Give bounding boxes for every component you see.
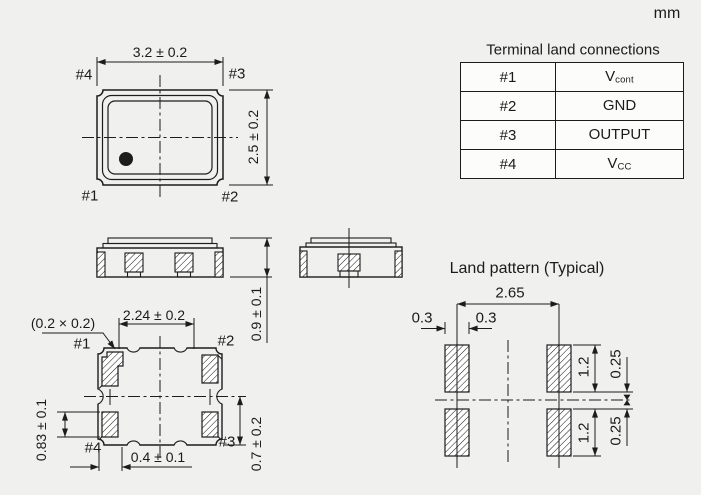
terminal-left bbox=[300, 251, 307, 277]
land-pattern-gap-top-dim: 0.25 bbox=[609, 349, 624, 378]
terminal-number-cell: #3 bbox=[461, 121, 556, 150]
terminal-left bbox=[97, 252, 105, 277]
terminal-center-a bbox=[125, 253, 143, 272]
end-side-view-drawing bbox=[300, 228, 402, 288]
land-pattern-offset-right-dim: 0.3 bbox=[476, 311, 497, 326]
terminal-land-connections-table: #1 Vcont #2 GND #3 OUTPUT #4 VCC bbox=[460, 62, 684, 179]
terminal-connection-cell: Vcont bbox=[556, 63, 684, 92]
terminal-number-cell: #2 bbox=[461, 92, 556, 121]
bottom-view-center-offset-dim: 0.7 ± 0.2 bbox=[249, 417, 263, 471]
bottom-view-index-notch-dim: (0.2 × 0.2) bbox=[31, 316, 95, 330]
terminal-foot-a bbox=[128, 272, 141, 277]
top-view-pin2-label: #2 bbox=[222, 190, 239, 205]
pad-width-dim-extensions bbox=[99, 447, 122, 471]
terminal-number-cell: #4 bbox=[461, 150, 556, 179]
bottom-view-pad-pitch-dim: 2.24 ± 0.2 bbox=[123, 308, 185, 322]
top-view-pin3-label: #3 bbox=[229, 67, 246, 82]
top-view-height-dim: 2.5 ± 0.2 bbox=[246, 110, 260, 164]
pad-3 bbox=[202, 412, 218, 437]
land-pattern-offset-left-dim: 0.3 bbox=[412, 311, 433, 326]
centerlines bbox=[82, 75, 238, 200]
pin1-index-dot bbox=[119, 152, 133, 166]
terminal-foot-b bbox=[178, 272, 191, 277]
land-pattern-pad-length-top-dim: 1.2 bbox=[577, 357, 592, 378]
bottom-view-pin1-label: #1 bbox=[74, 337, 91, 352]
front-side-view-drawing bbox=[97, 238, 272, 343]
terminal-table-title: Terminal land connections bbox=[486, 43, 659, 58]
table-row: #4 VCC bbox=[461, 150, 684, 179]
top-view-pin4-label: #4 bbox=[76, 68, 93, 83]
gap-bottom-dim-arrow bbox=[624, 400, 631, 405]
height-dim-extensions bbox=[230, 238, 272, 277]
top-view-width-dim: 3.2 ± 0.2 bbox=[133, 45, 187, 59]
gap-top-dim-arrow bbox=[624, 395, 631, 400]
bottom-view-pin3-label: #3 bbox=[219, 435, 236, 450]
lid-top bbox=[311, 238, 391, 243]
unit-label: mm bbox=[654, 6, 681, 22]
pad-1 bbox=[102, 352, 123, 386]
table-row: #2 GND bbox=[461, 92, 684, 121]
terminal-center-b bbox=[175, 253, 193, 272]
pad-length-dim-extensions bbox=[57, 412, 100, 437]
land-pattern-title: Land pattern (Typical) bbox=[450, 261, 605, 277]
land-pattern-gap-bottom-dim: 0.25 bbox=[609, 416, 624, 445]
bottom-view-pad-width-dim: 0.4 ± 0.1 bbox=[131, 450, 185, 464]
bottom-view-pin4-label: #4 bbox=[85, 441, 102, 456]
terminal-right bbox=[215, 252, 223, 277]
pad-4 bbox=[102, 412, 118, 437]
bottom-view-pin2-label: #2 bbox=[218, 334, 235, 349]
body bbox=[97, 248, 223, 277]
terminal-connection-cell: VCC bbox=[556, 150, 684, 179]
bottom-view-pad-length-dim: 0.83 ± 0.1 bbox=[34, 399, 48, 461]
top-view-pin1-label: #1 bbox=[82, 189, 99, 204]
terminal-right bbox=[395, 251, 402, 277]
land-pattern-drawing bbox=[421, 304, 633, 468]
terminal-connection-cell: OUTPUT bbox=[556, 121, 684, 150]
terminal-connection-cell: GND bbox=[556, 92, 684, 121]
land-pattern-pad-length-bottom-dim: 1.2 bbox=[577, 423, 592, 444]
land-pattern-pitch-dim: 2.65 bbox=[495, 286, 524, 301]
side-view-height-dim: 0.9 ± 0.1 bbox=[249, 287, 263, 341]
table-row: #1 Vcont bbox=[461, 63, 684, 92]
table-row: #3 OUTPUT bbox=[461, 121, 684, 150]
pad-2 bbox=[202, 355, 218, 383]
datasheet-drawing-page: mm Terminal land connections #1 Vcont #2… bbox=[0, 0, 701, 495]
terminal-number-cell: #1 bbox=[461, 63, 556, 92]
lid-top bbox=[108, 238, 212, 244]
